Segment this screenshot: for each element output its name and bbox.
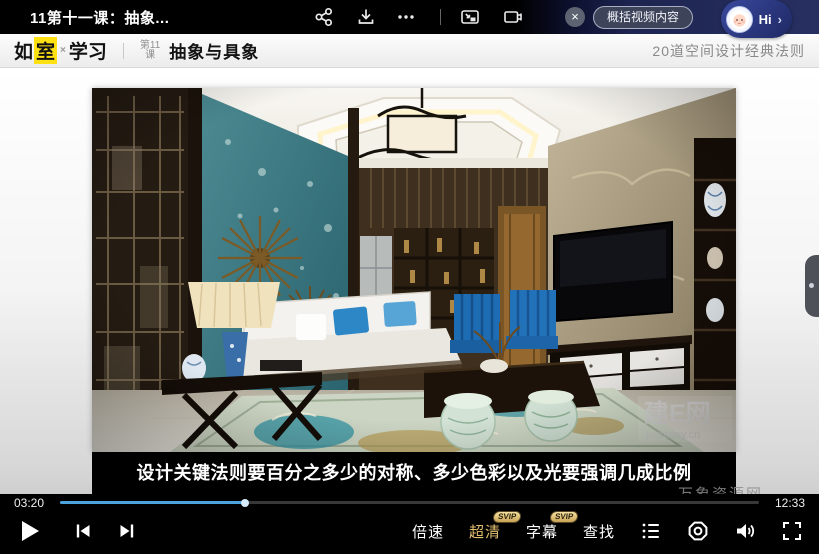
- site-logo[interactable]: 如 室 × 学习: [14, 37, 107, 64]
- lesson-title: 抽象与具象: [169, 38, 259, 63]
- collapsed-side-widget[interactable]: [805, 255, 819, 317]
- chevron-right-icon: ›: [778, 12, 782, 27]
- window-title: 11第十一课：抽象...: [30, 7, 169, 28]
- seek-thumb[interactable]: [241, 499, 249, 507]
- current-time: 03:20: [14, 496, 50, 510]
- subtitle-button-wrap: 字幕 SVIP: [526, 521, 558, 542]
- share-icon[interactable]: [314, 7, 336, 27]
- lesson-number: 第11 课: [140, 41, 160, 61]
- settings-icon[interactable]: [687, 520, 709, 542]
- more-icon[interactable]: [396, 7, 426, 27]
- summarize-video-button[interactable]: 概括视频内容: [593, 6, 693, 29]
- topbar-divider: [440, 9, 441, 25]
- lesson-number-bottom: 课: [145, 51, 155, 61]
- find-button[interactable]: 查找: [583, 521, 615, 542]
- progress-row: 03:20 12:33: [0, 494, 819, 511]
- svip-badge-2: SVIP: [549, 511, 579, 523]
- volume-icon[interactable]: [734, 520, 756, 542]
- avatar: [726, 6, 753, 33]
- logo-highlight: 室: [34, 37, 57, 64]
- previous-icon[interactable]: [74, 522, 92, 540]
- svip-badge: SVIP: [492, 511, 522, 523]
- quality-button[interactable]: 超清: [469, 524, 501, 541]
- progress-fill: [60, 501, 245, 504]
- course-series-title: 20道空间设计经典法则: [652, 41, 805, 61]
- subtitle-button[interactable]: 字幕: [526, 524, 558, 541]
- cast-icon[interactable]: [503, 7, 525, 27]
- playback-speed-button[interactable]: 倍速: [412, 521, 444, 542]
- hi-label: Hi: [759, 12, 772, 27]
- fullscreen-icon[interactable]: [781, 520, 803, 542]
- seek-bar[interactable]: [60, 501, 759, 504]
- account-pill[interactable]: Hi ›: [721, 0, 792, 38]
- logo-separator: ×: [60, 45, 66, 56]
- video-frame: 建E网 justeasy.cn: [92, 88, 736, 452]
- play-icon[interactable]: [16, 518, 42, 544]
- next-icon[interactable]: [118, 522, 136, 540]
- playlist-icon[interactable]: [640, 520, 662, 542]
- video-player-window: 11第十一课：抽象...: [0, 0, 819, 554]
- logo-study-text: 学习: [69, 37, 107, 64]
- top-bar: 11第十一课：抽象...: [0, 0, 819, 34]
- course-header: 如 室 × 学习 第11 课 抽象与具象 20道空间设计经典法则: [0, 34, 819, 68]
- quality-button-wrap: 超清 SVIP: [469, 521, 501, 542]
- pip-icon[interactable]: [460, 7, 482, 27]
- header-divider: [123, 43, 124, 59]
- video-surface[interactable]: 建E网 justeasy.cn 设计关键法则要百分之多少的对称、多少色彩以及光要…: [0, 68, 819, 554]
- close-icon[interactable]: ×: [565, 7, 585, 27]
- right-controls: 倍速 超清 SVIP 字幕 SVIP 查找: [412, 520, 803, 542]
- total-time: 12:33: [769, 496, 805, 510]
- download-icon[interactable]: [356, 7, 378, 27]
- lesson-number-top: 第11: [140, 41, 160, 51]
- player-control-bar: 03:20 12:33 倍速 超清 SVIP: [0, 494, 819, 554]
- controls-row: 倍速 超清 SVIP 字幕 SVIP 查找: [0, 511, 819, 551]
- logo-text: 如: [14, 37, 33, 64]
- subtitle-text: 设计关键法则要百分之多少的对称、多少色彩以及光要强调几成比例: [92, 452, 736, 495]
